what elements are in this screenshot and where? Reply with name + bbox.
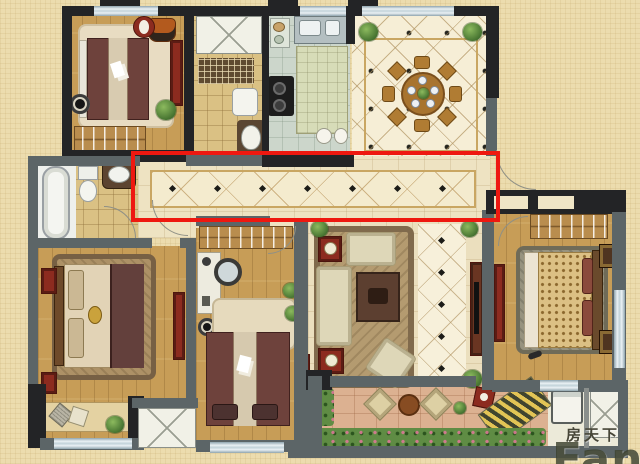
- wall: [132, 398, 198, 408]
- master-bed-ornament: [88, 306, 102, 324]
- desk-item-2: [202, 296, 210, 306]
- vanity-mirror: [214, 258, 242, 286]
- wall: [294, 218, 308, 448]
- kitchen-pot: [316, 128, 332, 144]
- plant-living-ne: [461, 221, 478, 237]
- plant-living-nw: [311, 221, 328, 237]
- living-tv-screen: [474, 282, 479, 334]
- master-nightstand: [41, 268, 57, 294]
- dining-chair-s: [414, 119, 430, 132]
- bed-runner-stripe: [108, 38, 128, 120]
- coffee-table-tray: [368, 288, 388, 304]
- plant-dining-left: [359, 23, 378, 41]
- wall: [346, 8, 355, 44]
- master-tv-cabinet: [173, 292, 185, 360]
- balcony-table-round: [398, 394, 420, 416]
- kitchen-sink-basin: [299, 20, 321, 36]
- vanity-sink-oval: [108, 166, 130, 183]
- kitchen-pot-2: [334, 128, 348, 144]
- stool-black: [70, 94, 90, 114]
- sofa-loveseat: [346, 232, 396, 266]
- balcony-flower-bed: [312, 428, 546, 446]
- master-bed-pillow: [68, 270, 84, 310]
- wall: [184, 6, 194, 162]
- right-bed-pillow-2: [582, 300, 593, 336]
- wall: [482, 210, 494, 390]
- wall: [30, 238, 152, 248]
- ac-platform: [138, 408, 196, 448]
- toilet-left-bathroom: [78, 166, 98, 180]
- dining-place-setting-5: [426, 99, 435, 108]
- corridor-highlight-box: [131, 151, 500, 222]
- dining-chair-n: [414, 56, 430, 69]
- bed-middle-pillow: [212, 404, 238, 420]
- lamp-2: [325, 354, 338, 367]
- balcony-door: [540, 380, 578, 391]
- stove-burner-2: [273, 99, 286, 112]
- dining-place-setting-3: [430, 86, 439, 95]
- toilet-top-bathroom: [241, 125, 261, 150]
- shower-top-bathroom: [196, 16, 262, 54]
- wall-left-outer: [28, 156, 38, 388]
- wall: [62, 6, 72, 162]
- toilet-left-bowl: [79, 180, 97, 202]
- window-bedroom-topleft: [94, 6, 158, 16]
- plant-master: [106, 416, 124, 433]
- sofa-main: [316, 266, 352, 346]
- floorplan-image: 房天下 Fang: [0, 0, 640, 464]
- plant-topleft-bedroom: [156, 100, 176, 120]
- wall: [486, 98, 497, 156]
- right-bed-pillow: [582, 258, 593, 294]
- master-bed-blanket: [110, 264, 144, 368]
- wall: [30, 156, 140, 166]
- washbasin-top-bathroom: [232, 88, 258, 116]
- window-middle-bedroom: [210, 442, 284, 453]
- dining-centerpiece: [418, 88, 429, 99]
- window-dining: [362, 6, 454, 16]
- window-kitchen: [300, 6, 346, 16]
- balcony-red-table-cup: [480, 393, 488, 401]
- balcony-plant-small: [454, 402, 466, 414]
- kitchen-sink-basin-2: [325, 20, 340, 36]
- dining-place-setting: [418, 76, 427, 85]
- lamp: [324, 242, 337, 255]
- washing-machine: [551, 390, 583, 424]
- bathtub: [42, 166, 70, 240]
- right-tv-cabinet: [494, 264, 505, 342]
- stove-burner: [273, 82, 286, 95]
- bed-middle-pillow-2: [252, 404, 278, 420]
- window-right-bedroom: [614, 290, 625, 368]
- wardrobe-right: [530, 214, 608, 239]
- master-bed-pillow-2: [68, 318, 84, 358]
- watermark-en: Fang: [552, 434, 640, 464]
- dining-chair-e: [449, 86, 462, 102]
- wall: [486, 6, 499, 98]
- pouf-cushion: [139, 20, 149, 34]
- kitchen-counter: [296, 46, 348, 134]
- kitchen-plate: [273, 22, 285, 32]
- desk-item: [202, 257, 211, 266]
- wall: [330, 376, 476, 387]
- wall-niche: [536, 194, 576, 211]
- bath-mat-mosaic: [198, 58, 254, 84]
- plant-dining-right: [463, 23, 482, 41]
- tv-cabinet-topleft: [170, 40, 183, 106]
- dining-place-setting-2: [407, 86, 416, 95]
- window-master-bottom: [54, 438, 132, 449]
- kitchen-plate-2: [274, 35, 284, 44]
- wall: [308, 376, 322, 454]
- dining-chair-w: [382, 86, 395, 102]
- dining-place-setting-4: [411, 99, 420, 108]
- wardrobe-topleft: [74, 126, 146, 153]
- door-arc-dining: [496, 150, 536, 190]
- wall: [262, 8, 269, 156]
